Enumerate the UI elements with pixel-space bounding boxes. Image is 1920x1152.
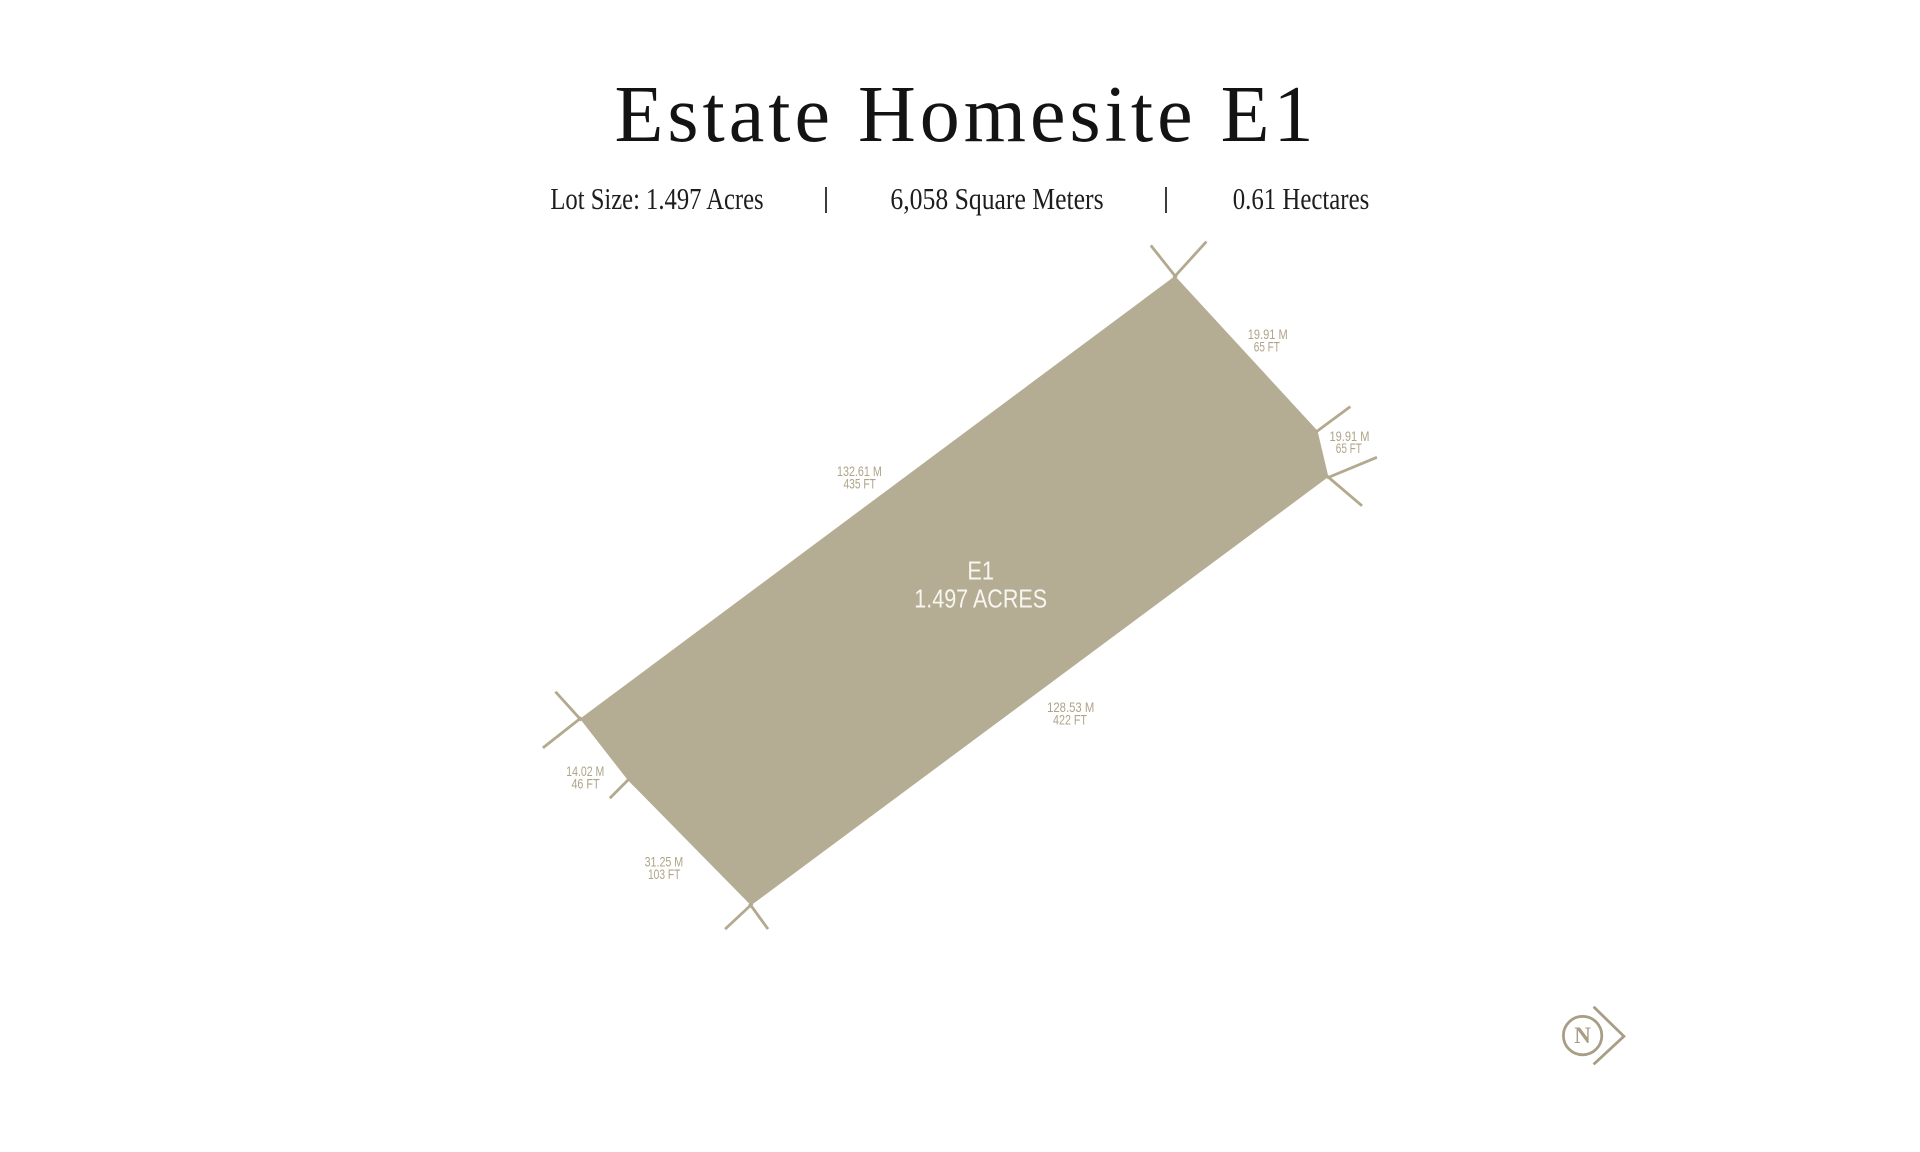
svg-text:E1: E1: [967, 555, 994, 585]
svg-text:N: N: [1574, 1023, 1591, 1048]
svg-text:46 FT: 46 FT: [571, 775, 599, 791]
svg-text:65 FT: 65 FT: [1254, 338, 1280, 354]
svg-text:65 FT: 65 FT: [1336, 440, 1362, 456]
svg-text:422 FT: 422 FT: [1053, 712, 1087, 728]
svg-text:1.497 ACRES: 1.497 ACRES: [914, 583, 1047, 613]
svg-text:103 FT: 103 FT: [648, 866, 681, 882]
svg-text:435 FT: 435 FT: [844, 476, 877, 492]
